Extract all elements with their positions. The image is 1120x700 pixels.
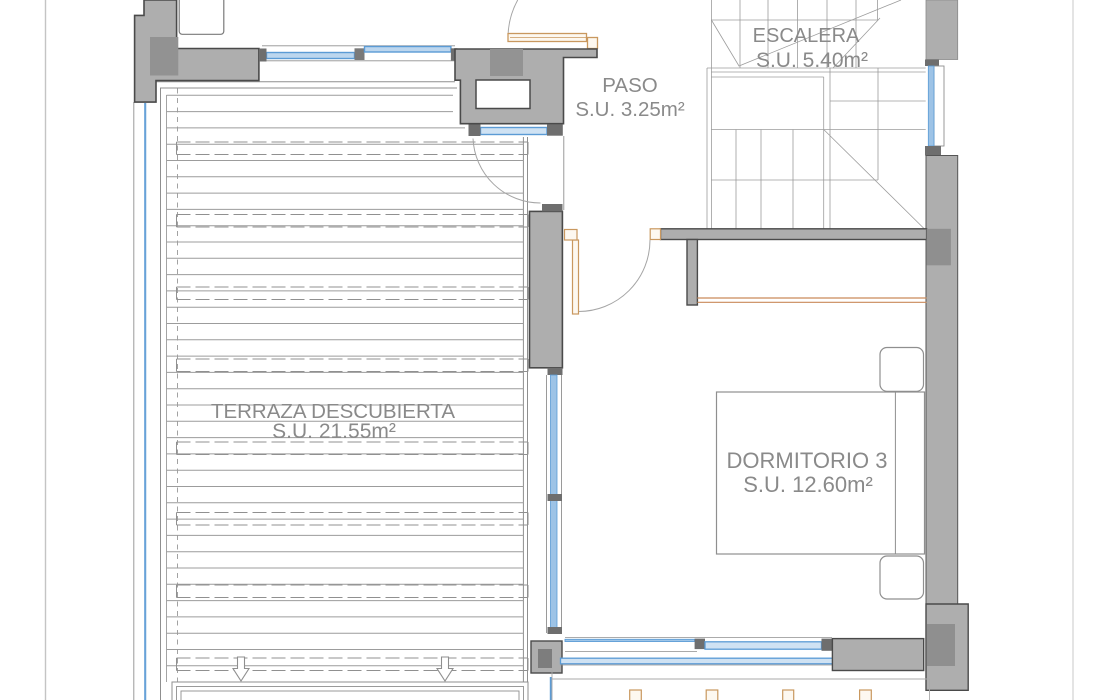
svg-text:S.U. 5.40m²: S.U. 5.40m² [756, 49, 868, 72]
svg-text:S.U. 3.25m²: S.U. 3.25m² [575, 98, 685, 121]
svg-text:S.U. 21.55m²: S.U. 21.55m² [272, 420, 396, 443]
svg-text:DORMITORIO 3: DORMITORIO 3 [727, 448, 888, 473]
svg-text:ESCALERA: ESCALERA [753, 25, 860, 47]
svg-text:PASO: PASO [602, 74, 657, 97]
svg-text:S.U. 12.60m²: S.U. 12.60m² [743, 472, 873, 497]
